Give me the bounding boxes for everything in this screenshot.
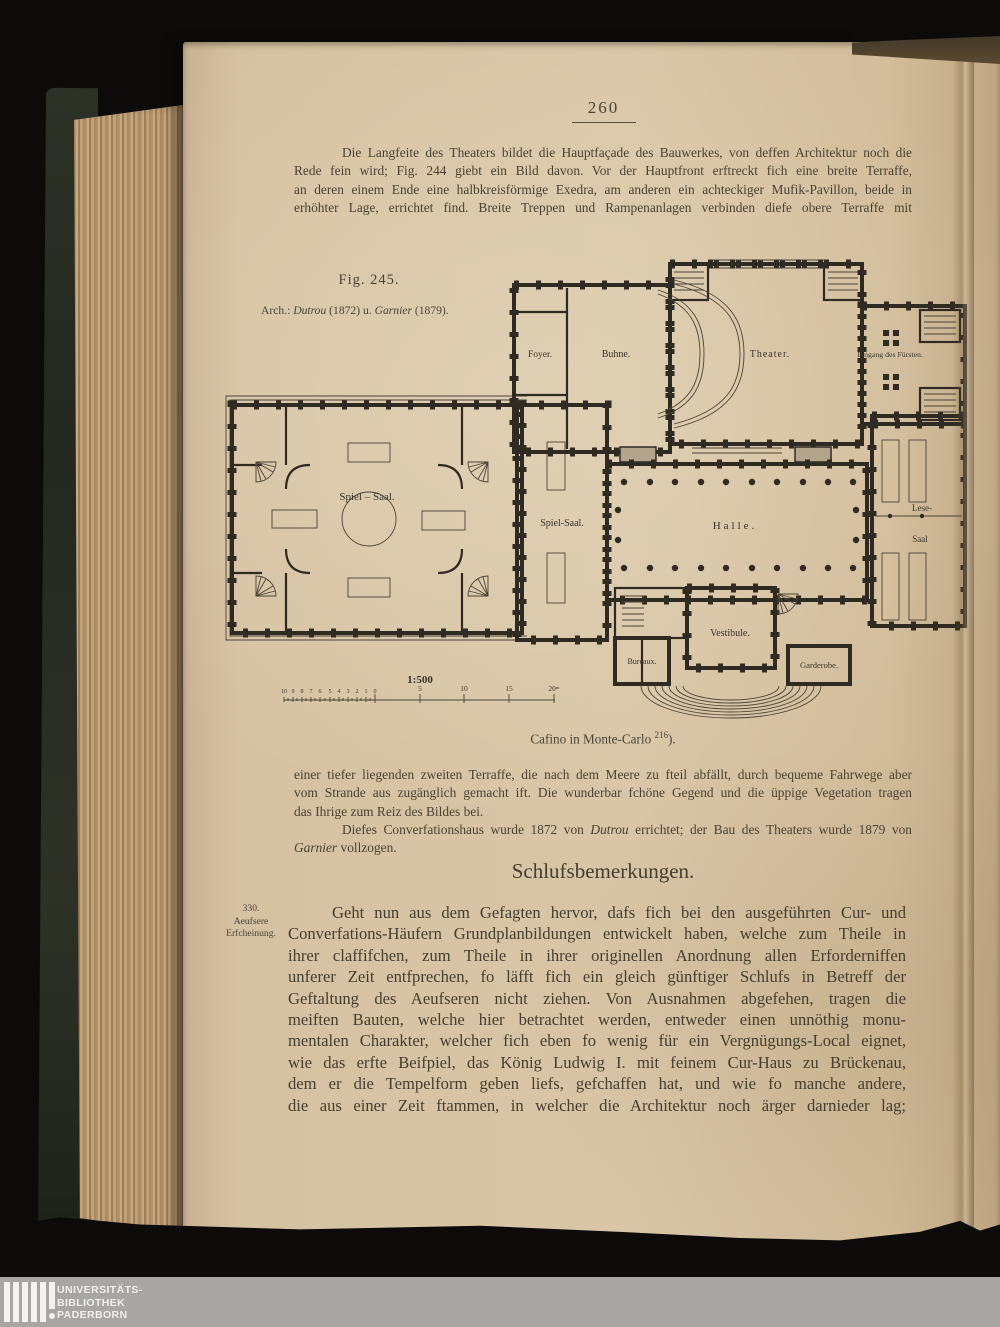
plan-entrance-steps (641, 686, 821, 718)
text-line: unferer Zeit entfprechen, fo läfft fich … (288, 966, 906, 987)
room-label-eingang: Eingang des Fürsten. (857, 350, 923, 359)
scale-tick: 8 (301, 689, 304, 695)
text-line: Geftaltung des Aeufseren nicht ziehen. V… (288, 988, 906, 1009)
library-name-line: PADERBORN (57, 1309, 143, 1322)
page-number-rule (572, 122, 636, 123)
floor-plan-figure: Spiel – Saal. Spiel-Saal. Foyer. Buhne. (222, 250, 967, 728)
text-run: vollzogen. (337, 840, 397, 855)
scale-tick: 1 (365, 689, 368, 695)
plan-scale-bar: 1:500 10 9 8 7 6 5 4 3 2 1 0 5 10 15 2 (281, 674, 560, 703)
text-line: die aus einer Zeit ftammen, in welcher d… (288, 1095, 906, 1116)
room-label-spiel-saal-klein: Spiel-Saal. (540, 518, 584, 529)
scale-tick: 9 (292, 689, 295, 695)
plan-eingang: Eingang des Fürsten. (857, 306, 965, 424)
text-line: Rede fein wird; Fig. 244 giebt ein Bild … (294, 162, 912, 180)
caption-footnote-ref: 216 (654, 730, 668, 740)
page-fore-edge (74, 104, 190, 1234)
room-label-lese1: Lese- (912, 503, 932, 513)
library-name-line: UNIVERSITÄTS- (57, 1284, 143, 1297)
figure-caption: Cafino in Monte-Carlo 216). (294, 730, 912, 747)
text-line: Garnier vollzogen. (294, 839, 912, 857)
margin-note: 330. Aeufsere Erfcheinung. (219, 903, 283, 941)
text-line: Die Langfeite des Theaters bildet die Ha… (294, 144, 912, 162)
text-line: einer tiefer liegenden zweiten Terraffe,… (294, 766, 912, 784)
paragraph-schlussbemerkungen: Geht nun aus dem Gefagten hervor, dafs f… (288, 902, 906, 1116)
library-name-line: BIBLIOTHEK (57, 1297, 143, 1310)
margin-note-line: Aeufsere (219, 916, 283, 929)
plan-spiel-saal-klein: Spiel-Saal. (517, 405, 607, 640)
scale-tick: 3 (347, 689, 350, 695)
plan-stage-block: Foyer. Buhne. (514, 285, 670, 452)
caption-close: ). (668, 731, 676, 746)
paragraph-intro: Die Langfeite des Theaters bildet die Ha… (294, 144, 912, 217)
scale-major-tick: 20ᵐ (548, 684, 560, 693)
section-heading: Schlufsbemerkungen. (294, 859, 912, 884)
plan-theater: Theater. (658, 260, 862, 444)
room-label-foyer: Foyer. (528, 350, 552, 360)
room-label-halle: Halle. (713, 520, 758, 532)
margin-note-line: 330. (219, 903, 283, 916)
room-label-theater: Theater. (750, 349, 790, 360)
text-line: wie das erfte Beifpiel, das König Ludwig… (288, 1052, 906, 1073)
text-line: mentalen Charakter, welcher fich eben fo… (288, 1030, 906, 1051)
scale-tick: 10 (281, 689, 287, 695)
room-label-garderobe: Garderobe. (800, 660, 838, 670)
caption-text: Cafino in Monte-Carlo (530, 731, 654, 746)
plan-halle: Halle. (607, 447, 867, 600)
scale-major-tick: 15 (505, 684, 513, 693)
text-line: das Ihrige zum Reiz des Bildes bei. (294, 803, 912, 821)
page-number: 260 (551, 98, 656, 118)
library-logo-icon (4, 1282, 55, 1324)
margin-note-line: Erfcheinung. (219, 928, 283, 941)
scale-tick: 2 (356, 689, 359, 695)
scale-tick: 4 (338, 689, 341, 695)
book-page: 260 Die Langfeite des Theaters bildet di… (183, 42, 1000, 1245)
text-line: vom Strande aus zugänglich gemacht ift. … (294, 784, 912, 802)
text-line: dem er die Tempelform geben liefs, gefch… (288, 1073, 906, 1094)
architect-name-italic: Dutrou (590, 822, 628, 837)
text-line: Geht nun aus dem Gefagten hervor, dafs f… (288, 902, 906, 923)
plan-lese-saal: Lese- Saal (872, 416, 965, 626)
scale-tick: 5 (329, 689, 332, 695)
text-line: Converfations-Häufern Grundplanbildungen… (288, 923, 906, 944)
text-run: errichtet; der Bau des Theaters wurde 18… (629, 822, 912, 837)
room-label-vestibule: Vestibule. (710, 628, 750, 639)
scale-tick: 6 (319, 689, 322, 695)
column-cluster (883, 330, 899, 390)
scale-tick: 0 (374, 689, 377, 695)
floor-plan-svg: Spiel – Saal. Spiel-Saal. Foyer. Buhne. (222, 250, 967, 728)
library-logo-text: UNIVERSITÄTS- BIBLIOTHEK PADERBORN (57, 1284, 143, 1322)
text-line: ihrer claffifchen, zum Theile in ihrer o… (288, 945, 906, 966)
room-label-buhne: Buhne. (602, 349, 631, 360)
text-line: an deren einem Ende eine halbkreisförmig… (294, 181, 912, 199)
text-line: meiften Bauten, welche hier betrachtet w… (288, 1009, 906, 1030)
room-label-spiel-saal-gross: Spiel – Saal. (339, 491, 395, 503)
text-line: Diefes Converfationshaus wurde 1872 von … (294, 821, 912, 839)
scale-major-tick: 5 (418, 684, 422, 693)
scale-tick: 7 (310, 689, 313, 695)
library-footer-bar: UNIVERSITÄTS- BIBLIOTHEK PADERBORN (0, 1277, 1000, 1327)
architect-name-italic: Garnier (294, 840, 337, 855)
plan-left-wing: Spiel – Saal. (226, 396, 527, 640)
room-label-lese2: Saal (912, 534, 928, 544)
scale-major-tick: 10 (460, 684, 468, 693)
text-run: Diefes Converfationshaus wurde 1872 von (342, 822, 590, 837)
text-line: erhöhter Lage, errichtet find. Breite Tr… (294, 199, 912, 217)
paragraph-terrasse: einer tiefer liegenden zweiten Terraffe,… (294, 766, 912, 857)
room-label-bureaux: Bureaux. (627, 657, 656, 666)
